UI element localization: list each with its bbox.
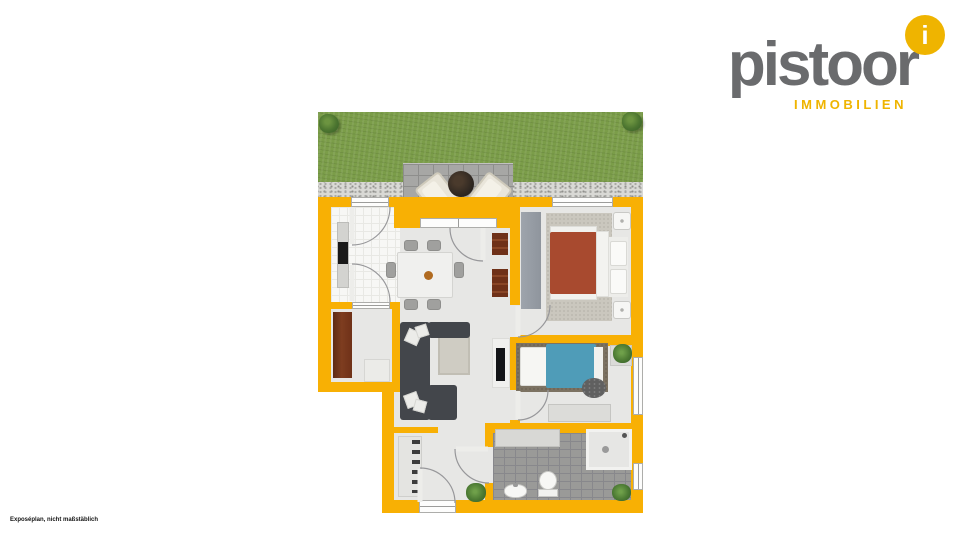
round-rug [582,378,606,398]
hallway-wall-stub [394,427,438,433]
logo-wordmark: pistoor [728,34,917,96]
terrace-recess-wall [394,207,403,228]
plant-icon [613,344,632,363]
tv [496,348,505,381]
terrace-door [420,218,497,228]
shower-head-icon [622,433,627,438]
sofa-chaise [428,385,457,420]
bed-pillow [610,269,627,294]
dining-chair [404,240,418,251]
dining-chair [427,299,441,310]
bathroom-window [633,463,643,490]
bathroom-door-opening [485,447,493,483]
kitchen-storage-door [352,302,390,309]
plant-icon [466,483,486,502]
bedroom1-wardrobe [521,212,541,309]
table-centerpiece [424,271,433,280]
single-bed-pillow [520,347,548,386]
faucet-icon [513,483,518,487]
nightstand [613,301,631,319]
sideboard [492,269,508,297]
plant-icon [612,484,631,501]
storage-cabinet [333,312,352,378]
dining-chair [454,262,464,278]
bed-rail [550,293,597,300]
bedroom1-door-opening [510,305,520,337]
bedroom1-window [552,197,613,207]
bedroom2-window [633,357,643,415]
shower-drain [602,446,609,453]
bathroom-vanity [495,429,560,447]
coat-hooks [412,440,420,493]
bedroom2-dresser [548,404,611,422]
kitchen-garden-door [351,197,389,207]
toilet [539,471,557,490]
dining-chair [427,240,441,251]
terrace-table [448,171,474,197]
plan-disclaimer: Exposéplan, nicht maßstäblich [10,517,98,523]
double-bed-blanket [550,232,597,294]
entrance-door [419,500,456,513]
logo-subtitle: IMMOBILIEN [794,97,907,112]
cooktop [338,242,348,264]
bed-pillow [610,241,627,266]
info-badge-icon: i [905,15,945,55]
storage-table [364,359,390,382]
dining-chair [404,299,418,310]
sideboard [492,233,508,255]
dining-chair [386,262,396,278]
floor-plan-page: pistoor IMMOBILIEN i [0,0,960,540]
bedroom2-door-opening [510,390,520,420]
bed-sheet [596,231,609,297]
living-room-rug [438,332,470,375]
tree-icon [622,112,642,131]
nightstand [613,212,631,230]
sofa-top-arm [428,322,470,338]
toilet-tank [538,489,558,497]
tree-icon [319,114,339,133]
